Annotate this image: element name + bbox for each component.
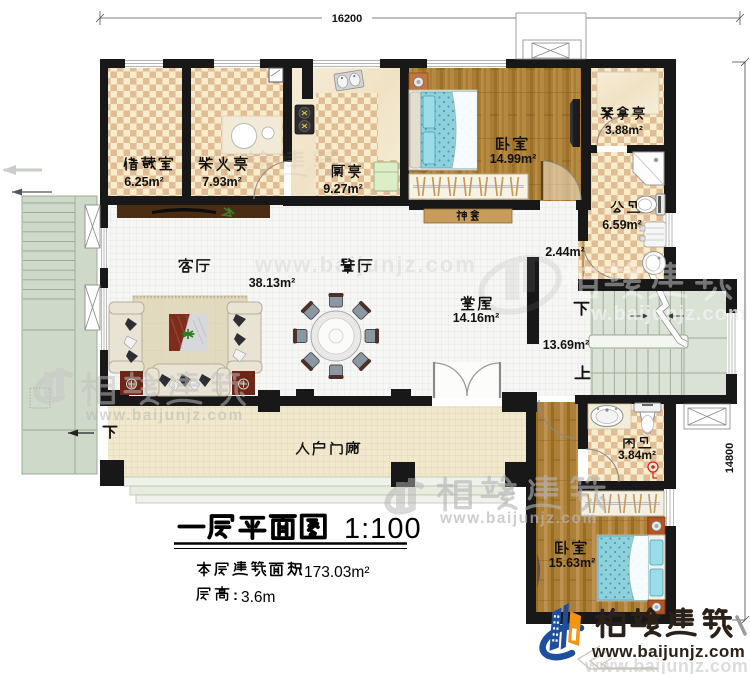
svg-text::: : (233, 587, 238, 604)
svg-text:2.44m²: 2.44m² (545, 245, 585, 259)
svg-text:38.13m²: 38.13m² (249, 276, 296, 290)
svg-text:9.27m²: 9.27m² (323, 182, 363, 196)
svg-text:3.84m²: 3.84m² (618, 448, 656, 462)
svg-text:15.63m²: 15.63m² (549, 556, 596, 570)
svg-text:www.baijunjz.com: www.baijunjz.com (85, 407, 244, 424)
svg-text:16200: 16200 (332, 13, 363, 25)
svg-text:14.99m²: 14.99m² (490, 152, 537, 166)
svg-text:3.88m²: 3.88m² (605, 123, 643, 137)
svg-text:1:100: 1:100 (344, 513, 422, 545)
svg-text:www.baijunjz.com: www.baijunjz.com (591, 642, 745, 661)
svg-text:173.03m²: 173.03m² (304, 564, 369, 581)
svg-text::: : (298, 562, 303, 579)
svg-text:3.6m: 3.6m (241, 589, 275, 606)
svg-text:13.69m²: 13.69m² (543, 338, 590, 352)
svg-text:www.baijunjz.com: www.baijunjz.com (439, 510, 598, 527)
svg-text:7.93m²: 7.93m² (202, 175, 242, 189)
svg-text:www.baijunjz.com: www.baijunjz.com (557, 303, 747, 325)
svg-text:6.25m²: 6.25m² (124, 175, 164, 189)
svg-text:6.59m²: 6.59m² (602, 218, 642, 232)
svg-text:14.16m²: 14.16m² (453, 311, 500, 325)
svg-text:14800: 14800 (724, 443, 736, 474)
